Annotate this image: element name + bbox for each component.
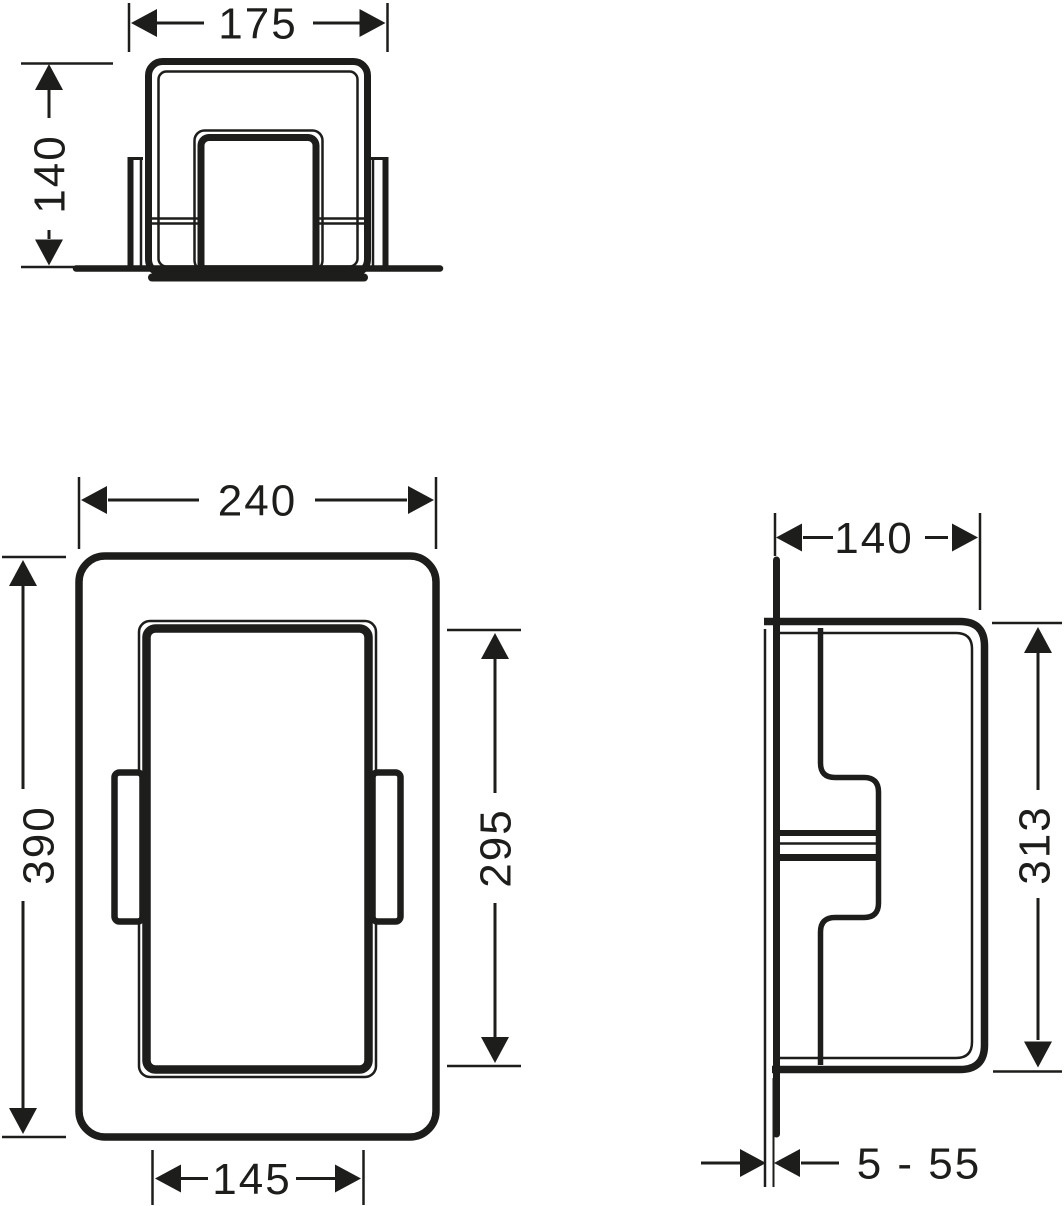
dimension-label: 313 [1010,805,1059,884]
technical-drawing-page: 175 140 240 [0,0,1064,1206]
arrowhead-inward-left [774,1149,800,1177]
arrowhead-left [155,1165,181,1193]
dimension-label: 145 [212,1155,291,1204]
outer-box-outline [149,62,368,274]
front-view-outline [79,556,436,1137]
dimension-top-depth: 140 [21,64,113,268]
top-view: 175 140 [21,0,440,278]
dimension-front-outer-width: 240 [79,476,436,549]
dimension-side-mounting-range: 5 - 55 [701,1139,981,1188]
opening-frame-outline [147,629,369,1070]
arrowhead-right [335,1165,361,1193]
dimension-label: 175 [218,0,297,48]
dimension-side-body-height: 313 [992,623,1062,1072]
arrowhead-up [1024,627,1052,653]
inner-step-profile [821,628,879,1065]
arrowhead-down [481,1037,509,1063]
dimension-front-outer-height: 390 [2,557,66,1137]
dimension-front-opening-height: 295 [447,630,521,1066]
arrowhead-left [81,486,107,514]
arrowhead-right [408,486,434,514]
inner-box-outline [201,138,316,273]
top-view-outline [76,62,440,278]
left-clip [115,773,143,922]
dimension-front-opening-width: 145 [153,1150,364,1205]
dimension-label: 140 [834,514,913,563]
arrowhead-down [9,1108,37,1134]
dimension-label: 5 - 55 [857,1139,982,1188]
arrowhead-up [481,633,509,659]
box-outline [764,622,985,1070]
arrowhead-left [776,524,802,552]
arrowhead-right [952,524,978,552]
side-view: 140 313 5 - 55 [701,513,1062,1188]
opening-outer-line [139,621,376,1077]
arrowhead-left [131,9,157,37]
technical-drawing: 175 140 240 [0,0,1064,1206]
arrowhead-up [9,560,37,586]
arrowhead-up [35,64,63,90]
dimension-label: 295 [471,808,520,887]
arrowhead-down [1024,1042,1052,1068]
inner-box-outer-line [195,131,323,271]
outer-box-inner-line [159,72,358,267]
dimension-label: 240 [218,476,297,525]
dimension-label: 390 [14,805,63,884]
dimension-side-depth: 140 [775,513,980,610]
side-view-outline [764,560,985,1187]
right-clip [373,773,401,922]
arrowhead-right [360,9,386,37]
front-view: 240 390 295 145 [2,476,521,1205]
arrowhead-down [35,240,63,266]
dimension-label: 140 [25,134,74,213]
box-inner-line [777,633,972,1058]
dimension-top-width: 175 [129,0,388,52]
arrowhead-inward-right [740,1149,766,1177]
